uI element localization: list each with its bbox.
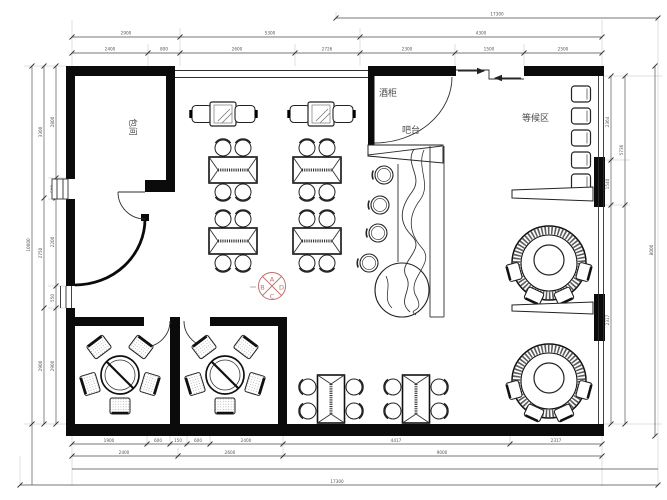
dim-label: 1540: [605, 178, 610, 189]
dim-label: 17300: [490, 12, 504, 17]
dim-label: 1900: [104, 438, 115, 443]
dining-table: [293, 210, 341, 272]
dim-label: 2317: [605, 314, 610, 325]
dim-label: 2364: [605, 116, 610, 127]
wine-cabinet-label: 酒柜: [379, 87, 397, 99]
window-left-1: [52, 179, 68, 199]
dining-table: [209, 210, 257, 272]
dim-label: 9000: [437, 450, 448, 455]
dimensions-right: 2364 1540 2317 5736 8000: [605, 64, 658, 439]
small-tables: [299, 375, 448, 423]
dim-label: 600: [194, 438, 202, 443]
dim-label: 5300: [265, 31, 276, 36]
dim-label: 5736: [619, 144, 624, 155]
dim-label: 3300: [38, 126, 43, 137]
dim-label: 2600: [225, 450, 236, 455]
dim-label: 2400: [241, 438, 252, 443]
dim-label: 2726: [322, 47, 333, 52]
dim-label: 2400: [105, 47, 116, 52]
dim-label: 550: [50, 294, 55, 302]
bar-counter-label: 吧台: [402, 124, 420, 136]
dim-label: 8000: [649, 244, 654, 255]
booth-divider: [512, 302, 593, 314]
round-table-room: [79, 335, 160, 414]
compass-letter-bottom: C: [270, 293, 275, 301]
dim-label: 600: [154, 438, 162, 443]
dim-label: 2900: [38, 360, 43, 371]
compass-letter-top: A: [270, 276, 275, 284]
lounge-sets: [191, 102, 354, 126]
entry-arrow-out-icon: [494, 75, 521, 81]
dim-label: 2900: [50, 360, 55, 371]
dim-label: 2600: [232, 47, 243, 52]
dimensions-left: 10000 3300 2750 2900 2800 500 2200 550 2…: [26, 64, 59, 486]
dim-label: 2400: [119, 450, 130, 455]
entrance: [374, 68, 524, 143]
waiting-area-label: 等候区: [522, 112, 549, 124]
waiting-area: 等候区: [512, 86, 593, 201]
floor-plan-drawing: 17300 2900 5300 4300 2400 800 2600 2726 …: [0, 0, 667, 500]
dim-label: 4300: [476, 31, 487, 36]
dim-label: 800: [160, 47, 168, 52]
dim-label: 10000: [26, 238, 31, 252]
round-table-room: [184, 335, 265, 414]
round-booth: [506, 344, 593, 422]
dimensions-top: 17300 2900 5300 4300 2400 800 2600 2726 …: [70, 12, 661, 56]
private-room-label: 包间: [127, 118, 138, 135]
small-table: [299, 375, 363, 423]
dim-label: 2317: [551, 438, 562, 443]
dim-label: 17300: [330, 479, 344, 484]
round-booth: [506, 226, 593, 305]
compass-marker: A B C D: [250, 273, 286, 301]
dim-label: 2500: [558, 47, 569, 52]
dim-label: 150: [174, 438, 182, 443]
door-private-room-top: [118, 192, 145, 219]
dining-tables: [209, 139, 341, 272]
dining-table: [209, 139, 257, 201]
floor-plan-page: 17300 2900 5300 4300 2400 800 2600 2726 …: [0, 0, 667, 500]
dim-label: 4417: [391, 438, 402, 443]
dim-label: 2300: [402, 47, 413, 52]
window-left-2: [61, 286, 72, 308]
dimensions-bottom: 1900 600 150 600 2400 4417 2317 2400 260…: [18, 438, 661, 488]
booth-seating: [506, 226, 593, 422]
compass-letter-left: B: [260, 284, 264, 292]
dining-table: [293, 139, 341, 201]
dim-label: 1500: [484, 47, 495, 52]
waiting-shelf: [512, 187, 593, 201]
compass-letter-right: D: [279, 284, 284, 292]
small-table: [384, 375, 448, 423]
dim-label: 2750: [38, 247, 43, 258]
entry-arrow-in-icon: [458, 68, 485, 74]
dim-label: 2900: [121, 31, 132, 36]
dim-label: 2200: [50, 236, 55, 247]
dim-label: 2800: [50, 116, 55, 127]
